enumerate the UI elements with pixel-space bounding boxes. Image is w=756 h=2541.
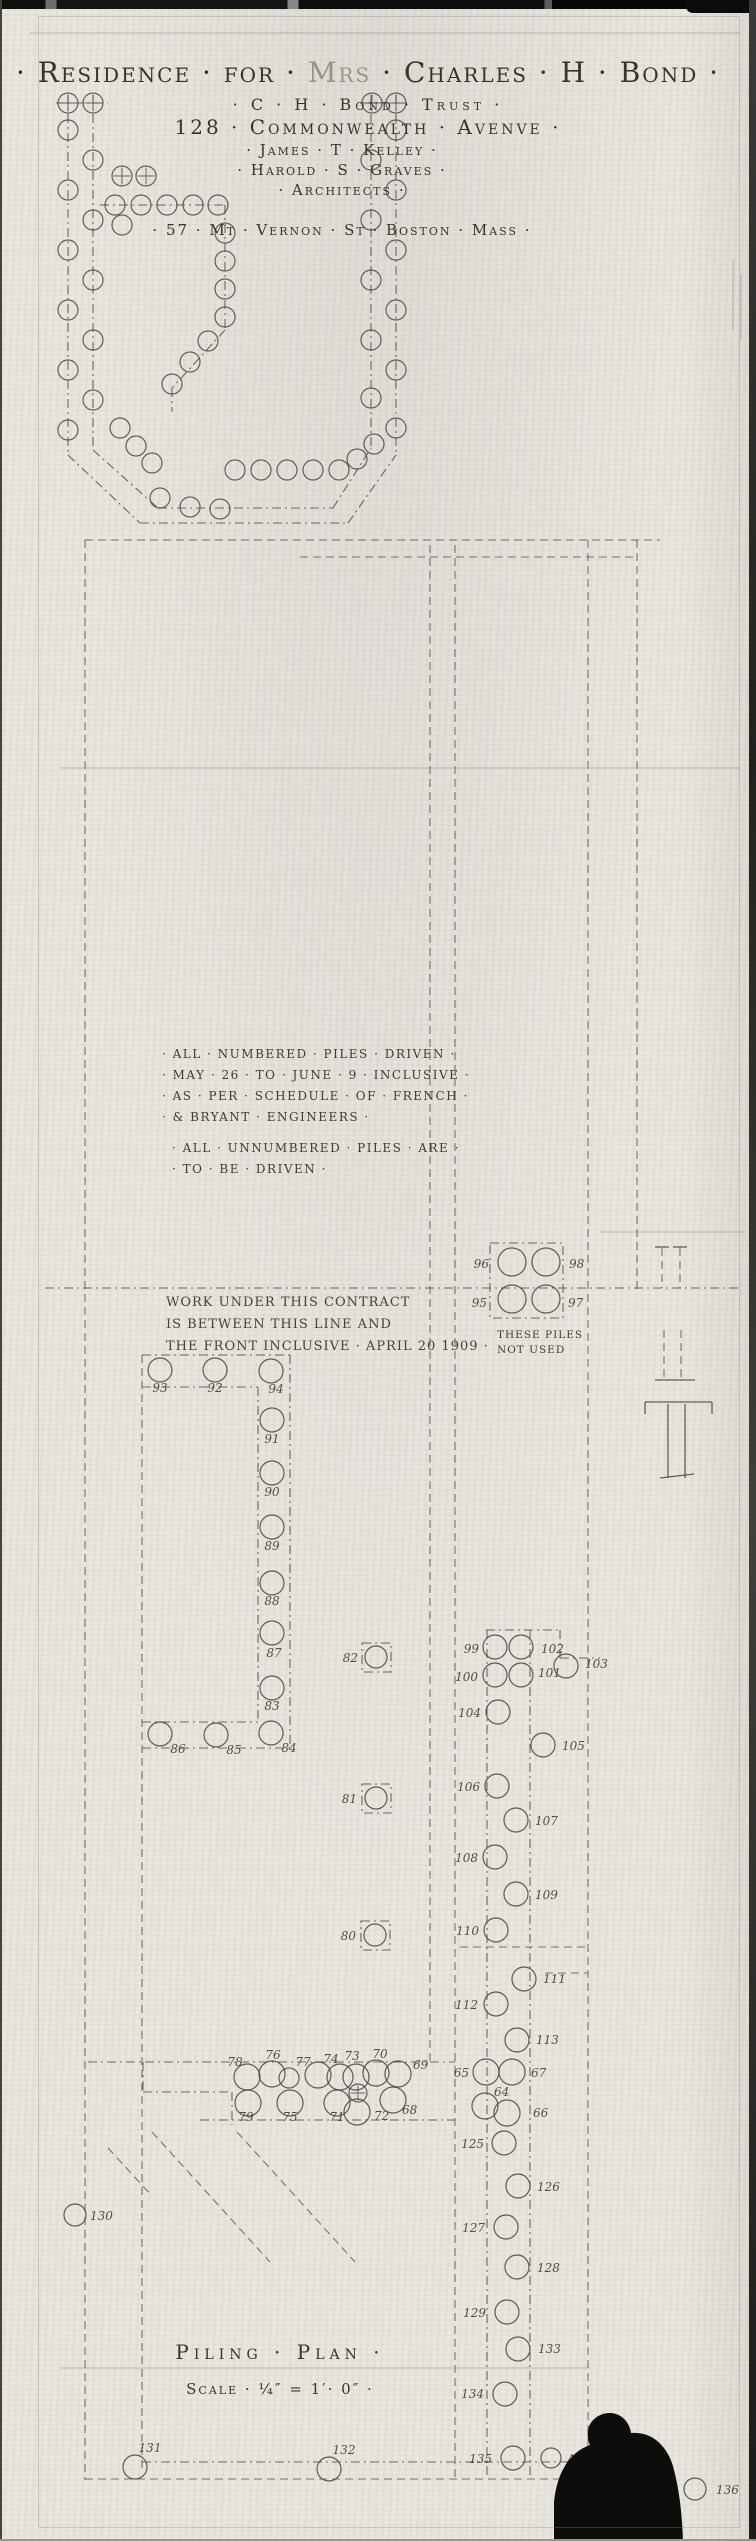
- drawing-sheet: 9392949190898887838685848281809698959799…: [0, 0, 756, 2541]
- sheet-border: [38, 16, 740, 2528]
- scan-edge-top: [0, 0, 756, 9]
- scan-edge-right: [749, 0, 756, 2541]
- scan-edge-left: [0, 0, 2, 2541]
- scan-edge-top-right: [686, 0, 756, 13]
